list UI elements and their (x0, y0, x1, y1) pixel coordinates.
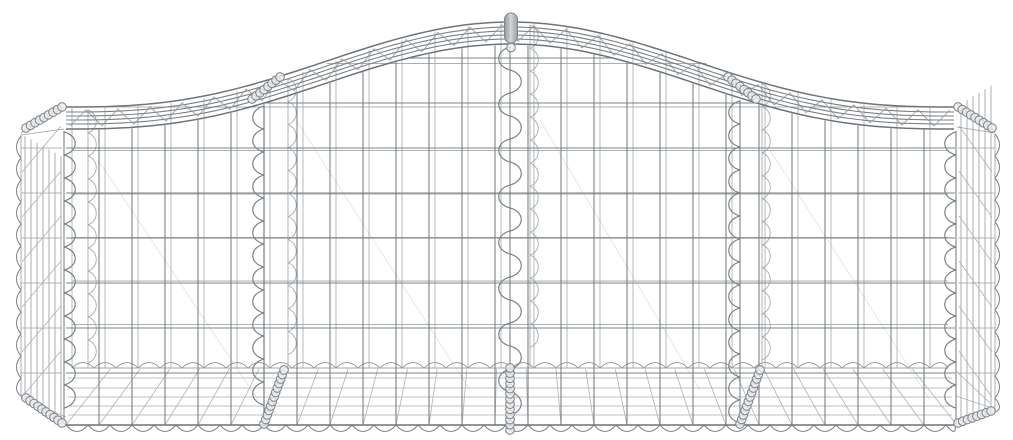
gabion-basket-illustration (0, 0, 1013, 440)
gabion-product-photo (0, 0, 1013, 440)
apex-pin (505, 13, 518, 52)
